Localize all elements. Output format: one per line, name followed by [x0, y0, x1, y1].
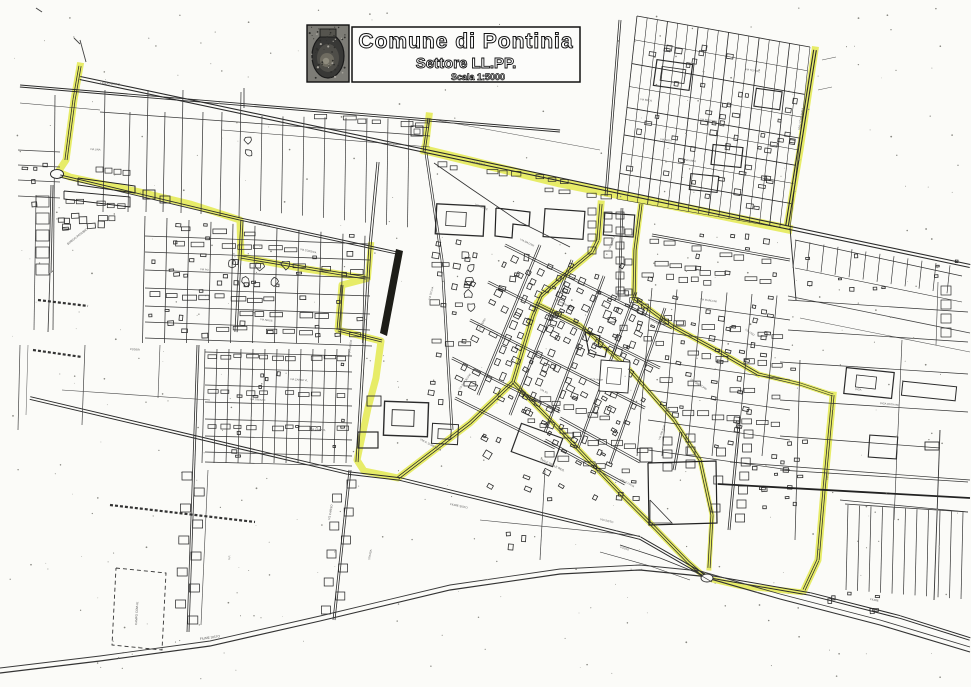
svg-text:S.P.: S.P.	[227, 555, 231, 560]
svg-text:DIGA: DIGA	[855, 387, 862, 392]
svg-text:Settore LL.PP.: Settore LL.PP.	[416, 55, 517, 72]
svg-text:Comune di Pontinia: Comune di Pontinia	[358, 30, 573, 53]
svg-text:PODERI: PODERI	[130, 347, 140, 352]
svg-text:VIA LINA: VIA LINA	[90, 147, 101, 152]
svg-text:VIA LIT.: VIA LIT.	[825, 470, 830, 480]
svg-text:Scala 1:5000: Scala 1:5000	[451, 72, 505, 82]
